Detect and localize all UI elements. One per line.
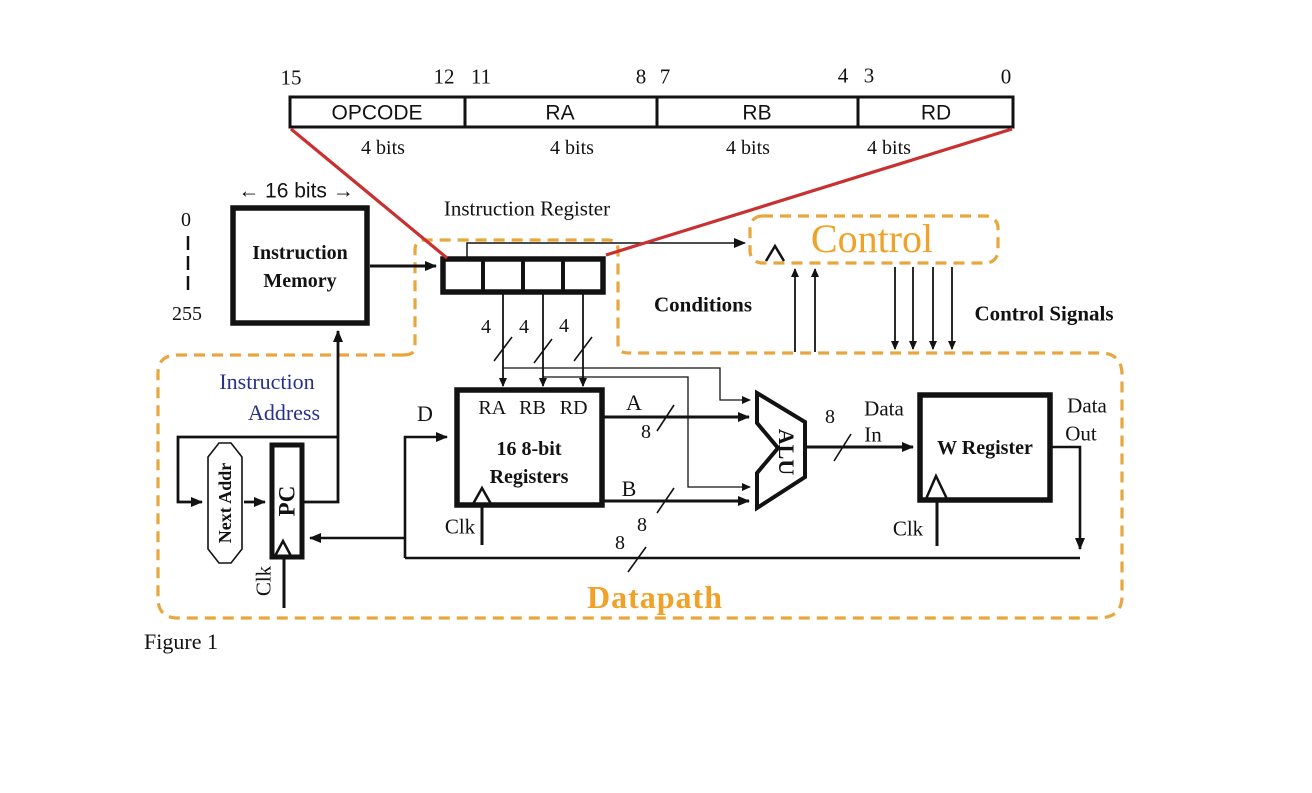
field-rb: RB [742,103,771,124]
pc-clk-label: Clk [254,566,275,596]
alu-out-width-label: 8 [825,407,835,427]
writeback-bus-width-tick [628,547,646,572]
field-width-opcode: 4 bits [361,138,405,158]
field-rd: RD [921,103,951,124]
regfile-name-1: 16 8-bit [497,439,562,459]
memory-width-label: ← 16 bits → [238,181,354,202]
bit-label-3: 3 [864,66,875,87]
field-ra: RA [545,103,574,124]
ir-width-label-3: 4 [559,316,569,336]
diagram-canvas [0,0,1312,793]
figure-caption: Figure 1 [144,631,218,653]
bit-label-15: 15 [281,68,302,89]
wreg-clk-label: Clk [893,519,923,540]
b-bus-width-label: 8 [637,515,647,535]
addr-first-label: 0 [181,210,191,230]
ir-width-label-1: 4 [481,317,491,337]
data-in-label-1: Data [864,399,904,420]
conditions-label: Conditions [654,295,752,316]
control-signals-label: Control Signals [974,304,1113,325]
field-width-ra: 4 bits [550,138,594,158]
bit-label-11: 11 [471,67,491,88]
ir-width-label-2: 4 [519,317,529,337]
data-out-wire [1050,447,1080,549]
addr-last-label: 255 [172,304,202,324]
a-bus-width-label: 8 [641,422,651,442]
writeback-width-label: 8 [615,533,625,553]
cpu-datapath-diagram: 15 12 11 8 7 4 3 0 OPCODE RA RB RD 4 bit… [0,0,1312,793]
field-width-rb: 4 bits [726,138,770,158]
regfile-ports-label: RA RB RD [478,398,587,418]
field-opcode: OPCODE [331,103,422,124]
bit-label-0: 0 [1001,67,1012,88]
bit-label-8: 8 [636,67,647,88]
bit-label-7: 7 [660,67,671,88]
instruction-memory-box [233,208,367,323]
b-port-label: B [622,478,637,500]
field-width-rd: 4 bits [867,138,911,158]
regfile-clk-label: Clk [445,517,475,538]
instruction-memory-name-1: Instruction [252,243,348,263]
data-out-label-1: Data [1067,396,1107,417]
control-clock-wedge-icon [766,246,784,261]
control-title: Control [811,219,933,259]
bit-label-12: 12 [434,67,455,88]
format-map-line-right [606,129,1012,255]
pc-label: PC [276,486,299,517]
instruction-memory-name-2: Memory [263,271,336,291]
instruction-register-label: Instruction Register [444,199,610,220]
instruction-address-line-2: Address [248,402,320,424]
regfile-name-2: Registers [490,467,569,487]
next-addr-label: Next Addr [216,463,234,544]
pc-feedback-to-next-addr-wire [178,437,338,502]
w-register-label: W Register [937,438,1033,458]
d-port-label: D [417,403,433,425]
writeback-to-d-wire [405,437,447,558]
bit-label-4: 4 [838,66,849,87]
datapath-title: Datapath [587,581,723,613]
opcode-to-control-wire [467,243,745,258]
a-port-label: A [626,392,642,414]
data-out-label-2: Out [1065,424,1097,445]
data-in-label-2: In [864,425,882,446]
alu-label: ALU [775,429,797,475]
instruction-address-line-1: Instruction [219,371,314,393]
